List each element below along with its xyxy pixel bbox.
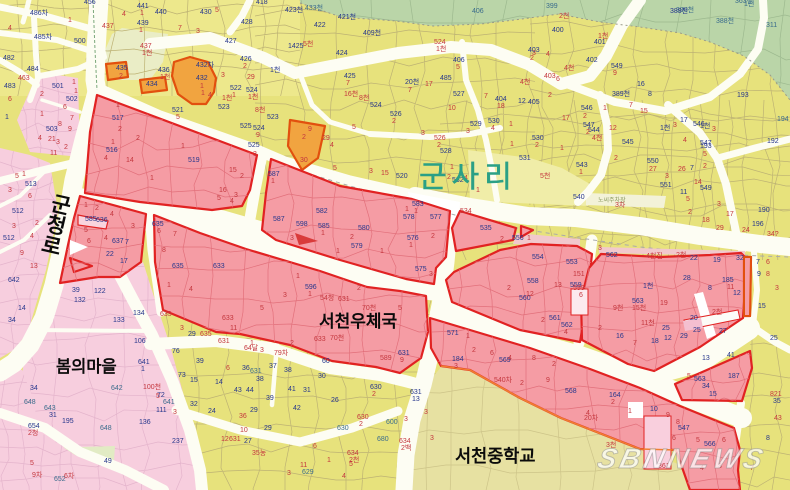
svg-text:2: 2: [243, 63, 247, 70]
svg-text:2: 2: [118, 126, 122, 133]
svg-text:3: 3: [598, 245, 602, 252]
svg-text:648: 648: [100, 425, 112, 432]
svg-text:54청: 54청: [320, 294, 334, 302]
svg-text:524: 524: [434, 39, 446, 46]
svg-text:629: 629: [302, 469, 314, 476]
svg-text:575: 575: [415, 266, 427, 273]
svg-text:32: 32: [736, 255, 744, 262]
svg-text:3: 3: [421, 130, 425, 137]
svg-text:1천: 1천: [248, 92, 258, 101]
svg-text:10: 10: [650, 406, 658, 413]
svg-text:12: 12: [733, 290, 741, 297]
svg-text:648: 648: [24, 399, 36, 406]
svg-text:2: 2: [500, 236, 504, 243]
svg-text:2: 2: [302, 134, 306, 141]
svg-text:585: 585: [318, 223, 330, 230]
svg-text:134: 134: [133, 310, 145, 317]
svg-text:164: 164: [609, 392, 621, 399]
svg-text:237: 237: [172, 438, 184, 445]
svg-text:13: 13: [702, 355, 710, 362]
svg-text:437: 437: [102, 23, 114, 30]
svg-text:516: 516: [106, 147, 118, 154]
svg-text:16: 16: [637, 81, 645, 88]
svg-text:524: 524: [370, 102, 382, 109]
svg-text:1: 1: [560, 145, 564, 152]
svg-text:635: 635: [172, 263, 184, 270]
svg-text:551: 551: [660, 182, 672, 189]
svg-text:194: 194: [777, 116, 789, 123]
svg-text:39: 39: [266, 395, 274, 402]
svg-text:641: 641: [163, 399, 175, 406]
svg-text:10: 10: [448, 105, 456, 112]
svg-text:4: 4: [104, 155, 108, 162]
svg-text:435: 435: [116, 65, 128, 72]
svg-text:6: 6: [672, 435, 676, 442]
svg-text:1천: 1천: [160, 72, 170, 81]
svg-text:409천: 409천: [363, 28, 381, 37]
svg-text:196: 196: [752, 221, 764, 228]
svg-text:406: 406: [453, 57, 465, 64]
svg-text:439: 439: [137, 20, 149, 27]
svg-text:3: 3: [196, 28, 200, 35]
svg-text:600: 600: [386, 419, 398, 426]
svg-text:546: 546: [581, 105, 593, 112]
svg-text:631: 631: [398, 350, 410, 357]
svg-text:587: 587: [268, 171, 280, 178]
svg-text:599: 599: [573, 285, 585, 292]
svg-text:1: 1: [167, 282, 171, 289]
svg-text:36: 36: [239, 413, 247, 420]
svg-text:35: 35: [773, 398, 781, 405]
svg-text:556: 556: [512, 235, 524, 242]
svg-text:502: 502: [66, 96, 78, 103]
svg-text:18: 18: [702, 217, 710, 224]
svg-text:14: 14: [215, 379, 223, 386]
svg-text:4: 4: [110, 211, 114, 218]
svg-text:1천: 1천: [643, 281, 653, 290]
svg-text:1: 1: [509, 121, 513, 128]
svg-text:29: 29: [247, 74, 255, 81]
svg-text:821: 821: [770, 391, 782, 398]
svg-text:2: 2: [431, 233, 435, 240]
svg-text:517: 517: [112, 115, 124, 122]
svg-text:4천: 4천: [564, 63, 574, 72]
svg-text:2: 2: [507, 285, 511, 292]
svg-text:6: 6: [87, 238, 91, 245]
svg-text:34: 34: [8, 317, 16, 324]
svg-text:5: 5: [398, 305, 402, 312]
svg-text:1: 1: [321, 230, 325, 237]
svg-text:527: 527: [453, 91, 465, 98]
svg-text:서천중학교: 서천중학교: [455, 446, 536, 466]
svg-text:529: 529: [470, 121, 482, 128]
svg-text:30: 30: [318, 373, 326, 380]
svg-text:1천: 1천: [436, 44, 446, 53]
svg-text:19: 19: [660, 300, 668, 307]
svg-text:5: 5: [15, 173, 19, 180]
svg-text:15: 15: [190, 377, 198, 384]
svg-text:423천: 423천: [285, 5, 303, 14]
svg-text:8: 8: [58, 121, 62, 128]
svg-text:9: 9: [20, 250, 24, 257]
svg-text:38: 38: [256, 376, 264, 383]
svg-text:136: 136: [139, 419, 151, 426]
svg-text:440: 440: [155, 9, 167, 16]
svg-text:3: 3: [665, 173, 669, 180]
svg-text:13: 13: [30, 263, 38, 270]
svg-text:5천: 5천: [303, 39, 313, 48]
svg-text:405: 405: [528, 99, 540, 106]
svg-text:425: 425: [344, 73, 356, 80]
svg-text:421천: 421천: [338, 12, 356, 21]
svg-text:2: 2: [392, 118, 396, 125]
svg-text:28: 28: [683, 275, 691, 282]
svg-text:1: 1: [72, 79, 76, 86]
svg-text:562: 562: [561, 322, 573, 329]
svg-text:2백: 2백: [401, 443, 411, 452]
svg-text:2: 2: [35, 220, 39, 227]
svg-text:22: 22: [690, 255, 698, 262]
svg-text:1천: 1천: [142, 48, 152, 57]
svg-text:630: 630: [357, 414, 369, 421]
svg-text:41: 41: [288, 386, 296, 393]
svg-text:군사리: 군사리: [419, 161, 517, 194]
svg-text:2: 2: [372, 391, 376, 398]
svg-text:10: 10: [240, 427, 248, 434]
svg-text:580: 580: [358, 225, 370, 232]
svg-text:1: 1: [296, 273, 300, 280]
svg-text:3: 3: [424, 409, 428, 416]
svg-text:17: 17: [425, 81, 433, 88]
svg-text:363천: 363천: [735, 0, 753, 5]
svg-text:4: 4: [491, 125, 495, 132]
svg-text:9천: 9천: [613, 303, 623, 312]
svg-text:16천: 16천: [344, 89, 358, 98]
svg-text:14: 14: [126, 157, 134, 164]
svg-text:3: 3: [131, 223, 135, 230]
svg-text:641: 641: [138, 359, 150, 366]
svg-text:6: 6: [313, 443, 317, 450]
svg-text:1: 1: [510, 141, 514, 148]
svg-text:3: 3: [717, 201, 721, 208]
svg-text:7: 7: [125, 239, 129, 246]
svg-text:122: 122: [94, 288, 106, 295]
svg-text:34?: 34?: [767, 231, 779, 238]
svg-text:486차: 486차: [30, 8, 49, 17]
svg-text:6: 6: [226, 365, 230, 372]
svg-text:430: 430: [200, 9, 212, 16]
svg-text:427: 427: [225, 38, 237, 45]
svg-text:456: 456: [84, 0, 96, 6]
svg-text:2: 2: [611, 399, 615, 406]
svg-text:598: 598: [296, 221, 308, 228]
svg-text:22: 22: [106, 251, 114, 258]
svg-text:3: 3: [8, 187, 12, 194]
svg-text:578: 578: [403, 214, 415, 221]
svg-text:17: 17: [562, 115, 570, 122]
svg-text:36: 36: [242, 365, 250, 372]
svg-text:29: 29: [322, 135, 330, 142]
svg-text:37: 37: [269, 363, 277, 370]
svg-text:15: 15: [709, 391, 717, 398]
svg-text:5: 5: [687, 373, 691, 380]
svg-text:44: 44: [246, 387, 254, 394]
svg-text:1: 1: [271, 178, 275, 185]
svg-text:3: 3: [369, 168, 373, 175]
svg-text:7: 7: [408, 87, 412, 94]
svg-text:서천우체국: 서천우체국: [319, 312, 398, 331]
svg-text:29: 29: [680, 333, 688, 340]
svg-text:630: 630: [370, 384, 382, 391]
svg-text:41: 41: [727, 352, 735, 359]
svg-text:15: 15: [381, 170, 389, 177]
svg-text:3: 3: [12, 223, 16, 230]
svg-text:5: 5: [703, 151, 707, 158]
svg-text:2: 2: [583, 113, 587, 120]
svg-text:1: 1: [232, 92, 236, 99]
svg-text:403: 403: [544, 73, 556, 80]
svg-text:631: 631: [218, 338, 230, 345]
svg-text:2: 2: [290, 340, 294, 347]
svg-text:133: 133: [113, 317, 125, 324]
svg-text:4: 4: [208, 92, 212, 99]
svg-text:549: 549: [700, 185, 712, 192]
svg-text:11: 11: [50, 150, 57, 157]
svg-text:1천: 1천: [700, 121, 710, 130]
svg-text:540: 540: [573, 194, 585, 201]
svg-text:483: 483: [4, 83, 16, 90]
svg-text:432: 432: [196, 75, 208, 82]
svg-text:3: 3: [712, 126, 716, 133]
svg-text:24: 24: [742, 227, 750, 234]
svg-text:524: 524: [253, 125, 265, 132]
svg-text:576: 576: [407, 235, 419, 242]
svg-text:654: 654: [28, 423, 40, 430]
svg-text:8: 8: [766, 271, 770, 278]
svg-text:553: 553: [566, 259, 578, 266]
svg-text:406: 406: [472, 8, 484, 15]
svg-text:9: 9: [613, 70, 617, 77]
svg-text:32: 32: [190, 401, 198, 408]
svg-text:187: 187: [728, 373, 740, 380]
svg-text:637: 637: [112, 238, 124, 245]
svg-text:520: 520: [396, 173, 408, 180]
svg-text:503: 503: [46, 126, 58, 133]
svg-text:184: 184: [452, 356, 464, 363]
svg-text:39: 39: [72, 287, 80, 294]
svg-text:545: 545: [622, 139, 634, 146]
svg-text:7: 7: [756, 259, 760, 266]
svg-text:525: 525: [240, 123, 252, 130]
svg-text:100천: 100천: [143, 382, 161, 391]
svg-text:534: 534: [460, 208, 472, 215]
svg-text:531: 531: [519, 155, 531, 162]
svg-text:1: 1: [84, 202, 88, 209]
svg-text:19: 19: [713, 257, 721, 264]
svg-text:16: 16: [616, 333, 624, 340]
svg-text:3: 3: [404, 416, 408, 423]
svg-text:526: 526: [390, 111, 402, 118]
svg-text:441: 441: [137, 3, 149, 10]
svg-text:9: 9: [68, 126, 72, 133]
svg-text:558: 558: [527, 278, 539, 285]
svg-text:554: 554: [532, 254, 544, 261]
svg-text:4: 4: [230, 198, 234, 205]
svg-text:3: 3: [283, 292, 287, 299]
svg-text:11: 11: [300, 462, 307, 469]
svg-text:15: 15: [640, 108, 648, 115]
svg-text:633: 633: [213, 263, 225, 270]
svg-text:3: 3: [429, 271, 433, 278]
svg-text:9: 9: [757, 271, 761, 278]
svg-text:9: 9: [256, 132, 260, 139]
svg-text:512: 512: [3, 235, 15, 242]
svg-text:635: 635: [152, 221, 164, 228]
svg-text:30: 30: [300, 157, 308, 164]
svg-text:3: 3: [180, 325, 184, 332]
svg-text:3: 3: [56, 139, 60, 146]
svg-text:1: 1: [327, 457, 331, 464]
svg-text:582: 582: [316, 208, 328, 215]
svg-text:9: 9: [400, 357, 404, 364]
svg-text:635: 635: [200, 331, 212, 338]
svg-text:1천: 1천: [270, 65, 280, 74]
svg-text:8천: 8천: [359, 93, 369, 102]
svg-text:6: 6: [28, 193, 32, 200]
svg-text:485차: 485차: [34, 32, 53, 41]
svg-text:631: 631: [250, 368, 262, 375]
svg-text:8: 8: [708, 285, 712, 292]
svg-text:2: 2: [520, 380, 524, 387]
svg-text:34: 34: [30, 385, 38, 392]
svg-text:4: 4: [104, 235, 108, 242]
svg-text:29: 29: [716, 225, 724, 232]
svg-text:1: 1: [5, 114, 9, 121]
svg-text:432차: 432차: [196, 60, 215, 69]
svg-text:8: 8: [162, 247, 166, 254]
svg-text:11: 11: [680, 189, 687, 196]
svg-text:3: 3: [221, 72, 225, 79]
svg-text:388천: 388천: [716, 16, 734, 25]
svg-text:9차: 9차: [32, 470, 43, 479]
svg-text:5: 5: [217, 195, 221, 202]
svg-text:2: 2: [586, 129, 590, 136]
svg-text:596: 596: [305, 284, 317, 291]
svg-text:523: 523: [267, 114, 279, 121]
svg-text:1: 1: [68, 17, 72, 24]
svg-text:17: 17: [680, 117, 688, 124]
svg-text:2: 2: [350, 234, 354, 241]
svg-text:9: 9: [308, 126, 312, 133]
svg-text:29: 29: [250, 407, 258, 414]
svg-text:12: 12: [609, 125, 617, 132]
svg-text:27: 27: [719, 328, 727, 335]
svg-text:550: 550: [647, 158, 659, 165]
svg-text:2천: 2천: [712, 307, 722, 316]
svg-text:7: 7: [690, 165, 694, 172]
svg-text:4천: 4천: [592, 133, 602, 142]
svg-text:193: 193: [700, 143, 712, 150]
svg-text:568: 568: [565, 388, 577, 395]
svg-text:1: 1: [139, 27, 143, 34]
svg-text:25: 25: [693, 327, 701, 334]
svg-text:1: 1: [628, 408, 632, 415]
svg-text:49: 49: [104, 458, 112, 465]
svg-text:3: 3: [253, 151, 257, 158]
svg-text:6: 6: [766, 259, 770, 266]
svg-text:8: 8: [532, 355, 536, 362]
svg-text:585: 585: [85, 216, 97, 223]
svg-text:634: 634: [399, 438, 411, 445]
svg-text:3: 3: [775, 285, 779, 292]
svg-text:8: 8: [766, 435, 770, 442]
svg-text:4천: 4천: [520, 77, 530, 86]
svg-text:29: 29: [264, 425, 272, 432]
svg-text:106: 106: [134, 338, 146, 345]
svg-text:4: 4: [189, 286, 193, 293]
svg-text:522: 522: [230, 85, 242, 92]
svg-text:563: 563: [694, 376, 706, 383]
svg-text:8: 8: [648, 91, 652, 98]
svg-text:2천: 2천: [676, 250, 686, 259]
svg-text:26: 26: [678, 166, 686, 173]
svg-text:26: 26: [331, 397, 339, 404]
svg-text:25: 25: [770, 335, 778, 342]
svg-text:8천: 8천: [255, 105, 265, 114]
svg-text:7: 7: [173, 231, 177, 238]
svg-text:3: 3: [260, 347, 264, 354]
svg-text:15천: 15천: [632, 303, 646, 312]
svg-text:2: 2: [119, 73, 123, 80]
svg-text:519: 519: [188, 157, 200, 164]
svg-text:4: 4: [8, 25, 12, 32]
svg-text:1: 1: [140, 10, 144, 17]
svg-text:563: 563: [632, 298, 644, 305]
svg-text:13: 13: [554, 282, 562, 289]
svg-text:484: 484: [27, 66, 39, 73]
svg-text:14: 14: [18, 305, 26, 312]
svg-text:25: 25: [662, 325, 670, 332]
svg-text:2: 2: [703, 163, 707, 170]
svg-text:1: 1: [74, 88, 78, 95]
svg-text:18: 18: [651, 338, 659, 345]
svg-text:5: 5: [84, 227, 88, 234]
svg-text:3: 3: [466, 128, 470, 135]
svg-text:20: 20: [690, 315, 698, 322]
svg-text:1: 1: [579, 169, 583, 176]
svg-text:9: 9: [666, 412, 670, 419]
svg-text:3: 3: [173, 409, 177, 416]
svg-text:12: 12: [526, 291, 534, 298]
svg-text:2: 2: [614, 155, 618, 162]
svg-text:151: 151: [573, 271, 585, 278]
svg-text:2: 2: [357, 285, 361, 292]
svg-text:12: 12: [664, 335, 672, 342]
svg-text:631: 631: [338, 296, 350, 303]
svg-text:3: 3: [673, 122, 677, 129]
svg-text:631: 631: [410, 389, 422, 396]
svg-text:633: 633: [222, 315, 234, 322]
svg-text:SBNNEWS: SBNNEWS: [594, 443, 769, 475]
svg-text:192: 192: [767, 138, 779, 145]
svg-text:2: 2: [688, 209, 692, 216]
svg-text:1: 1: [380, 248, 384, 255]
svg-text:1: 1: [336, 248, 340, 255]
svg-text:31: 31: [303, 387, 311, 394]
svg-text:389천: 389천: [612, 89, 630, 98]
svg-text:5: 5: [349, 461, 353, 468]
svg-text:2청: 2청: [28, 429, 38, 437]
